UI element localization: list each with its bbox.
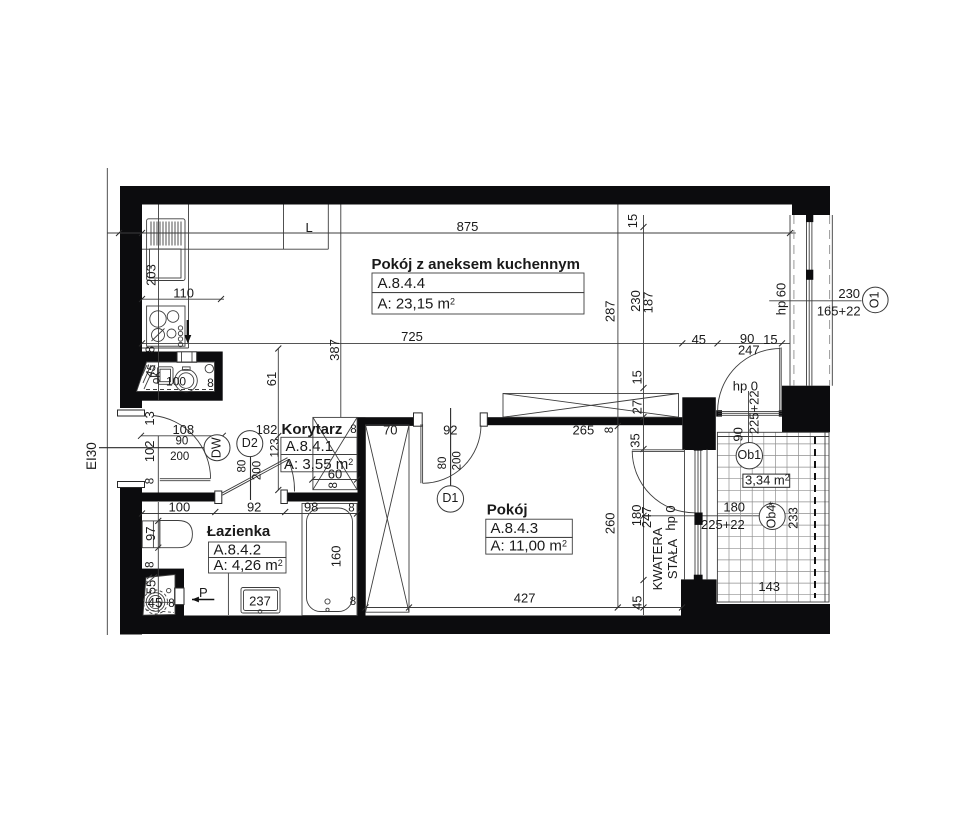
svg-text:97: 97 xyxy=(143,527,158,541)
svg-text:427: 427 xyxy=(514,591,536,606)
svg-text:45: 45 xyxy=(629,595,644,609)
svg-text:160: 160 xyxy=(329,546,344,568)
svg-text:L: L xyxy=(306,220,313,235)
svg-text:O1: O1 xyxy=(868,292,882,309)
svg-text:P: P xyxy=(199,585,208,600)
svg-text:A.8.4.1: A.8.4.1 xyxy=(286,438,334,455)
svg-text:8: 8 xyxy=(350,596,356,608)
svg-text:ok: ok xyxy=(151,372,163,384)
svg-text:98: 98 xyxy=(304,500,318,515)
svg-text:3,34 m2: 3,34 m2 xyxy=(745,473,790,488)
svg-text:875: 875 xyxy=(457,219,479,234)
svg-text:187: 187 xyxy=(640,292,655,314)
svg-text:8: 8 xyxy=(168,598,174,610)
svg-text:DW: DW xyxy=(209,437,223,458)
svg-text:287: 287 xyxy=(602,300,617,322)
svg-text:Pokój z aneksem kuchennym: Pokój z aneksem kuchennym xyxy=(372,256,580,273)
svg-text:90: 90 xyxy=(731,427,746,441)
svg-text:15: 15 xyxy=(630,370,645,384)
svg-text:100: 100 xyxy=(169,500,191,515)
svg-text:A: 23,15 m2: A: 23,15 m2 xyxy=(378,296,456,313)
svg-text:8: 8 xyxy=(207,376,214,390)
svg-text:61: 61 xyxy=(264,372,279,386)
svg-text:8: 8 xyxy=(328,482,340,488)
svg-text:A.8.4.4: A.8.4.4 xyxy=(378,275,426,292)
svg-text:Pokój: Pokój xyxy=(487,502,528,519)
svg-text:90: 90 xyxy=(176,436,189,448)
svg-text:hp 0: hp 0 xyxy=(663,505,678,530)
svg-text:100: 100 xyxy=(166,375,186,389)
svg-text:143: 143 xyxy=(758,579,780,594)
svg-text:92: 92 xyxy=(247,500,261,515)
svg-text:hp 60: hp 60 xyxy=(773,283,788,316)
svg-text:225+22: 225+22 xyxy=(701,517,745,532)
svg-text:15: 15 xyxy=(763,332,777,347)
svg-text:EI30: EI30 xyxy=(84,442,99,470)
svg-text:D2: D2 xyxy=(242,436,258,450)
svg-text:A: 4,26 m2: A: 4,26 m2 xyxy=(214,557,283,574)
svg-text:45: 45 xyxy=(692,332,706,347)
svg-text:180: 180 xyxy=(723,500,745,515)
svg-text:92: 92 xyxy=(443,423,457,438)
svg-text:200: 200 xyxy=(170,451,189,463)
svg-text:A.8.4.3: A.8.4.3 xyxy=(491,520,539,537)
svg-text:A: 3,55 m2: A: 3,55 m2 xyxy=(284,456,353,473)
svg-text:102: 102 xyxy=(142,440,157,462)
svg-text:13: 13 xyxy=(142,411,157,425)
svg-text:260: 260 xyxy=(603,512,618,534)
svg-text:Korytarz: Korytarz xyxy=(282,421,343,438)
svg-text:D1: D1 xyxy=(442,491,458,505)
svg-text:110: 110 xyxy=(173,286,194,301)
svg-text:15: 15 xyxy=(625,214,640,228)
svg-text:55: 55 xyxy=(143,580,158,594)
svg-text:165+22: 165+22 xyxy=(817,304,861,319)
svg-text:200: 200 xyxy=(452,451,464,470)
svg-text:A: 11,00 m2: A: 11,00 m2 xyxy=(491,538,567,555)
svg-text:247: 247 xyxy=(738,343,760,358)
svg-text:203: 203 xyxy=(143,264,158,286)
svg-text:Łazienka: Łazienka xyxy=(207,523,271,540)
svg-text:180: 180 xyxy=(629,505,644,527)
svg-text:80: 80 xyxy=(237,460,249,473)
svg-text:265: 265 xyxy=(573,423,595,438)
svg-text:80: 80 xyxy=(437,457,449,470)
svg-text:200: 200 xyxy=(252,461,264,480)
svg-text:8: 8 xyxy=(145,478,157,484)
svg-text:STAŁA: STAŁA xyxy=(665,539,680,580)
svg-text:237: 237 xyxy=(249,594,271,609)
svg-text:123: 123 xyxy=(270,438,282,457)
svg-text:45: 45 xyxy=(148,595,162,610)
svg-text:60: 60 xyxy=(328,467,342,482)
svg-text:Ob1: Ob1 xyxy=(737,448,761,462)
svg-text:225+22: 225+22 xyxy=(746,390,761,434)
svg-text:8: 8 xyxy=(143,346,157,353)
svg-text:387: 387 xyxy=(327,339,342,361)
svg-text:725: 725 xyxy=(401,329,423,344)
svg-text:70: 70 xyxy=(383,423,397,438)
svg-text:35: 35 xyxy=(627,433,642,447)
svg-text:KWATERA: KWATERA xyxy=(650,527,665,590)
svg-text:8: 8 xyxy=(348,503,354,515)
svg-text:8: 8 xyxy=(350,424,356,436)
svg-text:8: 8 xyxy=(144,561,156,567)
svg-text:230: 230 xyxy=(838,286,860,301)
svg-text:27: 27 xyxy=(630,400,645,414)
svg-text:233: 233 xyxy=(785,507,800,529)
svg-text:8: 8 xyxy=(604,427,616,433)
svg-text:*: * xyxy=(769,501,774,513)
svg-text:A.8.4.2: A.8.4.2 xyxy=(214,542,262,559)
